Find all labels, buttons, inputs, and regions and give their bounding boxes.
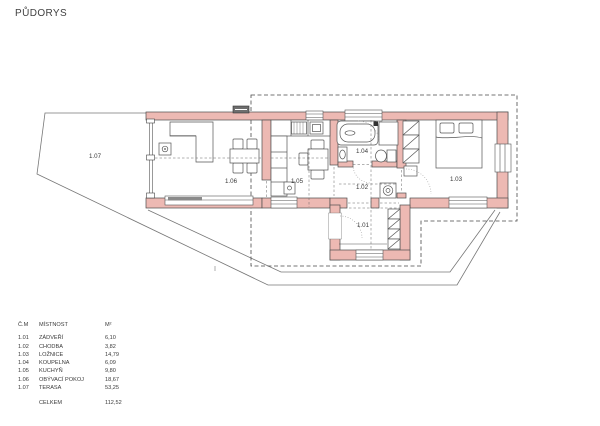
header-name: MÍSTNOST (39, 321, 105, 329)
kitchen-table (299, 140, 328, 179)
chimney (233, 106, 249, 113)
drawing-canvas: PŮDORYS (0, 0, 600, 426)
row-number: 1.06 (18, 376, 39, 384)
table-header: Č.M MÍSTNOST M² (18, 321, 135, 329)
shower (379, 122, 398, 145)
room-label-1-07: 1.07 (89, 153, 102, 160)
room-label-1-04: 1.04 (356, 148, 369, 155)
row-name: LOŽNICE (39, 351, 105, 359)
room-label-1-02: 1.02 (356, 184, 369, 191)
row-area: 14,79 (105, 351, 135, 359)
table-row: 1.04 KOUPELNA 6,09 (18, 359, 135, 367)
row-name: ZÁDVEŘÍ (39, 334, 105, 342)
row-area: 3,82 (105, 343, 135, 351)
sofa (170, 122, 213, 162)
bedroom-closet (403, 121, 419, 176)
room-label-1-03: 1.03 (450, 176, 463, 183)
row-area: 6,09 (105, 359, 135, 367)
header-area: M² (105, 321, 135, 329)
washing-machine (380, 183, 396, 198)
row-area: 18,67 (105, 376, 135, 384)
row-name: OBÝVACÍ POKOJ (39, 376, 105, 384)
room-schedule-table: Č.M MÍSTNOST M² 1.01 ZÁDVEŘÍ 6,10 1.02 C… (18, 321, 135, 408)
table-row: 1.01 ZÁDVEŘÍ 6,10 (18, 334, 135, 342)
table-row: 1.07 TERASA 53,25 (18, 384, 135, 392)
header-number: Č.M (18, 321, 39, 329)
total-label: CELKEM (39, 399, 105, 407)
bathroom-sink (338, 147, 347, 162)
row-name: CHODBA (39, 343, 105, 351)
room-label-1-05: 1.05 (291, 178, 304, 185)
glass-wall (147, 119, 155, 198)
row-number: 1.01 (18, 334, 39, 342)
entrance-wardrobe (388, 209, 400, 249)
bed (436, 120, 482, 168)
row-number: 1.04 (18, 359, 39, 367)
room-label-1-01: 1.01 (357, 222, 370, 229)
table-row: 1.03 LOŽNICE 14,79 (18, 351, 135, 359)
bathtub (337, 121, 378, 145)
row-number: 1.05 (18, 367, 39, 375)
total-value: 112,52 (105, 399, 135, 407)
row-number: 1.07 (18, 384, 39, 392)
row-number: 1.02 (18, 343, 39, 351)
dining-set (230, 139, 259, 173)
table-row: 1.05 KUCHYŇ 9,80 (18, 367, 135, 375)
row-area: 6,10 (105, 334, 135, 342)
row-area: 9,80 (105, 367, 135, 375)
table-total-row: CELKEM 112,52 (18, 399, 135, 407)
row-area: 53,25 (105, 384, 135, 392)
table-row: 1.02 CHODBA 3,82 (18, 343, 135, 351)
toilet (376, 150, 397, 162)
furniture (159, 120, 482, 249)
row-number: 1.03 (18, 351, 39, 359)
table-row: 1.06 OBÝVACÍ POKOJ 18,67 (18, 376, 135, 384)
row-name: KOUPELNA (39, 359, 105, 367)
room-label-1-06: 1.06 (225, 178, 238, 185)
fireplace-stove (159, 143, 171, 155)
row-name: TERASA (39, 384, 105, 392)
row-name: KUCHYŇ (39, 367, 105, 375)
